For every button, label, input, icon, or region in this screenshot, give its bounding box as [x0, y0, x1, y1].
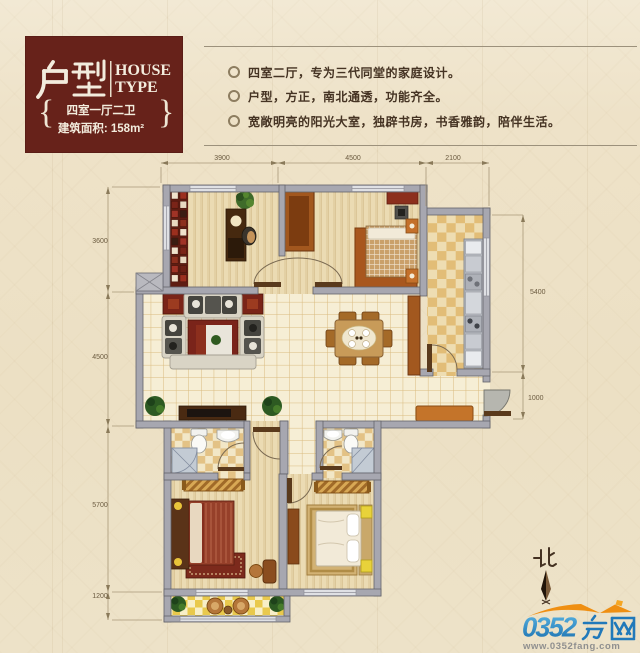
svg-text:1000: 1000: [528, 395, 544, 402]
svg-text:www.0352fang.com: www.0352fang.com: [522, 641, 620, 652]
svg-text:5700: 5700: [92, 502, 108, 509]
svg-text:5400: 5400: [530, 289, 546, 296]
svg-text:2100: 2100: [445, 155, 461, 162]
svg-text:3600: 3600: [92, 238, 108, 245]
svg-text:4500: 4500: [92, 354, 108, 361]
svg-text:4500: 4500: [345, 155, 361, 162]
svg-text:3900: 3900: [214, 155, 230, 162]
svg-text:1200: 1200: [92, 593, 108, 600]
svg-text:0352: 0352: [522, 612, 578, 643]
